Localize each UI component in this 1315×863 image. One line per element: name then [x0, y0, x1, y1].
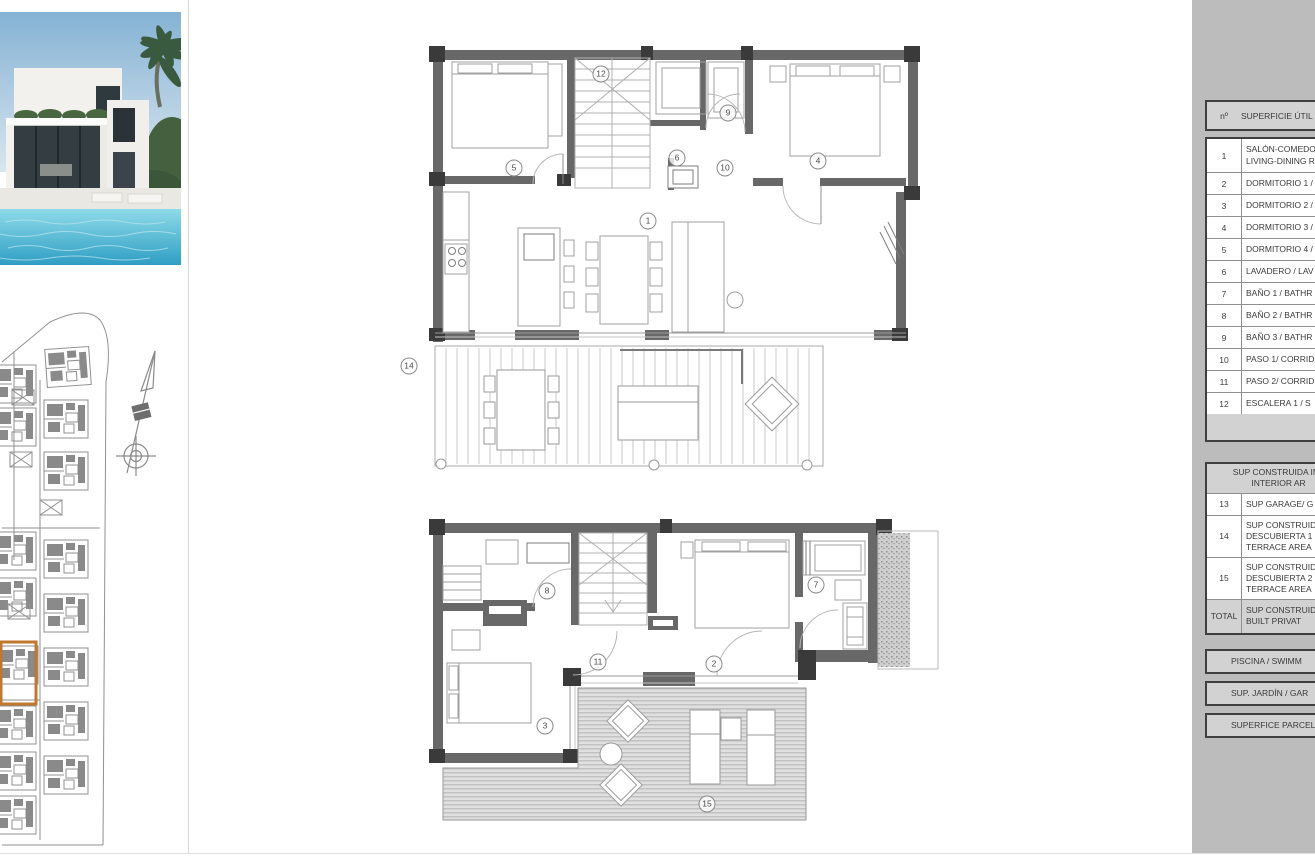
summary-bar: PISCINA / SWIMM: [1205, 649, 1315, 674]
table-body: 1SALÓN-COMEDORLIVING-DINING R2DORMITORIO…: [1205, 137, 1315, 442]
row-label: DORMITORIO 4 /: [1242, 239, 1315, 260]
table-header-number: nº: [1207, 111, 1241, 121]
gravel-strip: [878, 533, 910, 667]
table-row: TOTALSUP CONSTRUIDABUILT PRIVAT: [1207, 600, 1315, 633]
row-label: SUP CONSTRUIDDESCUBIERTA 1TERRACE AREA: [1242, 516, 1315, 557]
row-label: BAÑO 1 / BATHR: [1242, 283, 1315, 304]
north-arrow: [116, 351, 156, 476]
summary-bar: SUPERFICE PARCELA: [1205, 713, 1315, 738]
row-number: 1: [1207, 139, 1242, 172]
row-number: 11: [1207, 371, 1242, 392]
row-label: BAÑO 3 / BATHR: [1242, 327, 1315, 348]
table-row: 14SUP CONSTRUIDDESCUBIERTA 1TERRACE AREA: [1207, 516, 1315, 558]
row-number: 12: [1207, 393, 1242, 414]
bottom-divider: [0, 853, 1315, 854]
table-row: 1SALÓN-COMEDORLIVING-DINING R: [1207, 139, 1315, 173]
table-section-2: SUP CONSTRUIDA INT INTERIOR AR 13SUP GAR…: [1205, 462, 1315, 635]
plan-sheet: 5126910411487112315 nº SUPERFICIE ÚTIL 1…: [0, 0, 1315, 863]
row-label: LAVADERO / LAV: [1242, 261, 1315, 282]
floor-plan-lower: [429, 519, 938, 820]
row-number: 3: [1207, 195, 1242, 216]
table-empty-band: [1207, 414, 1315, 440]
section2-header-line2: INTERIOR AR: [1209, 478, 1315, 489]
row-number: 2: [1207, 173, 1242, 194]
table-row: 13SUP GARAGE/ G: [1207, 494, 1315, 516]
table-row: 9BAÑO 3 / BATHR: [1207, 327, 1315, 349]
table-header-label: SUPERFICIE ÚTIL: [1241, 111, 1315, 121]
site-plan: [0, 313, 108, 845]
table-row: 8BAÑO 2 / BATHR: [1207, 305, 1315, 327]
drawing-layer: [0, 0, 1315, 863]
row-number: TOTAL: [1207, 600, 1242, 633]
row-label: PASO 2/ CORRID: [1242, 371, 1315, 392]
row-number: 15: [1207, 558, 1242, 599]
table-row: 11PASO 2/ CORRID: [1207, 371, 1315, 393]
table-row: 3DORMITORIO 2 /: [1207, 195, 1315, 217]
section2-header: SUP CONSTRUIDA INT INTERIOR AR: [1207, 464, 1315, 494]
row-number: 5: [1207, 239, 1242, 260]
row-label: BAÑO 2 / BATHR: [1242, 305, 1315, 326]
terrace-upper: [435, 346, 823, 470]
row-number: 14: [1207, 516, 1242, 557]
summary-bar: SUP. JARDÍN / GAR: [1205, 681, 1315, 706]
row-label: PASO 1/ CORRID: [1242, 349, 1315, 370]
area-table: nº SUPERFICIE ÚTIL 1SALÓN-COMEDORLIVING-…: [1205, 100, 1315, 738]
section2-header-line1: SUP CONSTRUIDA INT: [1209, 467, 1315, 478]
row-number: 4: [1207, 217, 1242, 238]
row-number: 9: [1207, 327, 1242, 348]
floor-plan-upper: [429, 46, 920, 470]
row-label: DORMITORIO 1 /: [1242, 173, 1315, 194]
row-label: DORMITORIO 3 /: [1242, 217, 1315, 238]
row-label: ESCALERA 1 / S: [1242, 393, 1315, 414]
table-row: 4DORMITORIO 3 /: [1207, 217, 1315, 239]
table-row: 7BAÑO 1 / BATHR: [1207, 283, 1315, 305]
row-number: 6: [1207, 261, 1242, 282]
row-label: SALÓN-COMEDORLIVING-DINING R: [1242, 139, 1315, 172]
row-number: 8: [1207, 305, 1242, 326]
table-row: 2DORMITORIO 1 /: [1207, 173, 1315, 195]
table-header: nº SUPERFICIE ÚTIL: [1205, 100, 1315, 131]
row-label: SUP CONSTRUIDABUILT PRIVAT: [1242, 600, 1315, 633]
row-label: SUP GARAGE/ G: [1242, 494, 1315, 515]
table-row: 10PASO 1/ CORRID: [1207, 349, 1315, 371]
row-number: 7: [1207, 283, 1242, 304]
vertical-divider: [188, 0, 189, 853]
row-number: 10: [1207, 349, 1242, 370]
table-row: 5DORMITORIO 4 /: [1207, 239, 1315, 261]
row-label: DORMITORIO 2 /: [1242, 195, 1315, 216]
table-row: 12ESCALERA 1 / S: [1207, 393, 1315, 414]
row-number: 13: [1207, 494, 1242, 515]
table-row: 15SUP CONSTRUIDDESCUBIERTA 2TERRACE AREA: [1207, 558, 1315, 600]
table-row: 6LAVADERO / LAV: [1207, 261, 1315, 283]
row-label: SUP CONSTRUIDDESCUBIERTA 2TERRACE AREA: [1242, 558, 1315, 599]
